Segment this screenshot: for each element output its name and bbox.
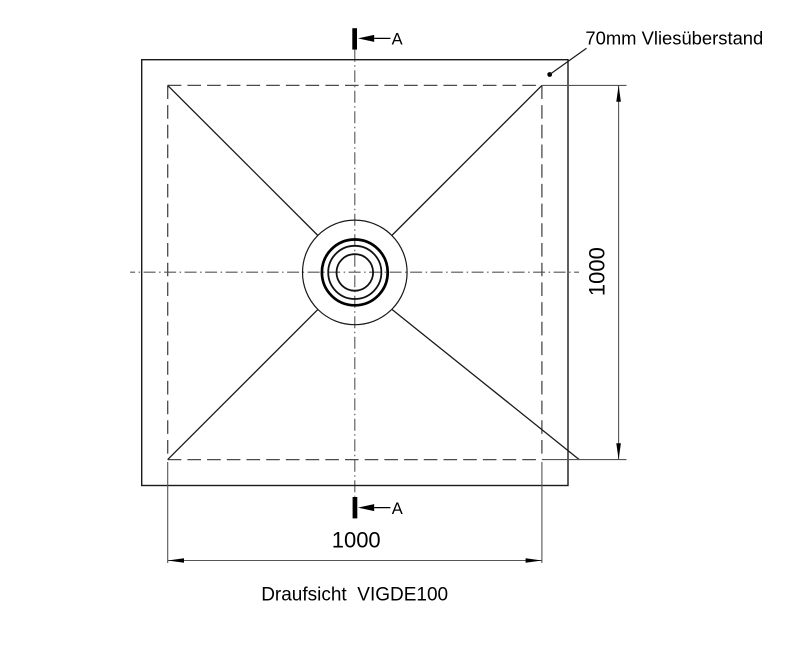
svg-text:1000: 1000 bbox=[332, 528, 381, 553]
svg-text:Draufsicht VIGDE100: Draufsicht VIGDE100 bbox=[261, 584, 448, 605]
svg-text:70mm Vliesüberstand: 70mm Vliesüberstand bbox=[585, 28, 763, 49]
svg-text:A: A bbox=[392, 500, 403, 518]
svg-text:A: A bbox=[392, 31, 403, 49]
svg-text:1000: 1000 bbox=[585, 247, 610, 296]
